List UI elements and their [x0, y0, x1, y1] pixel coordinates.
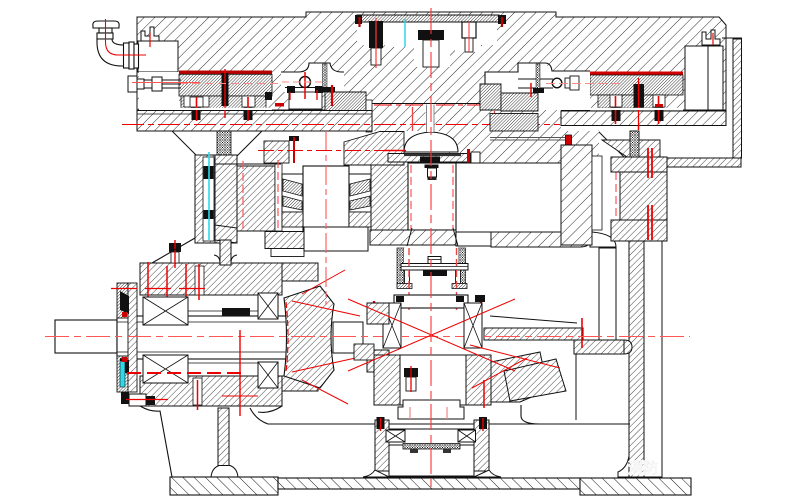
svg-text:消防: 消防	[628, 460, 658, 477]
